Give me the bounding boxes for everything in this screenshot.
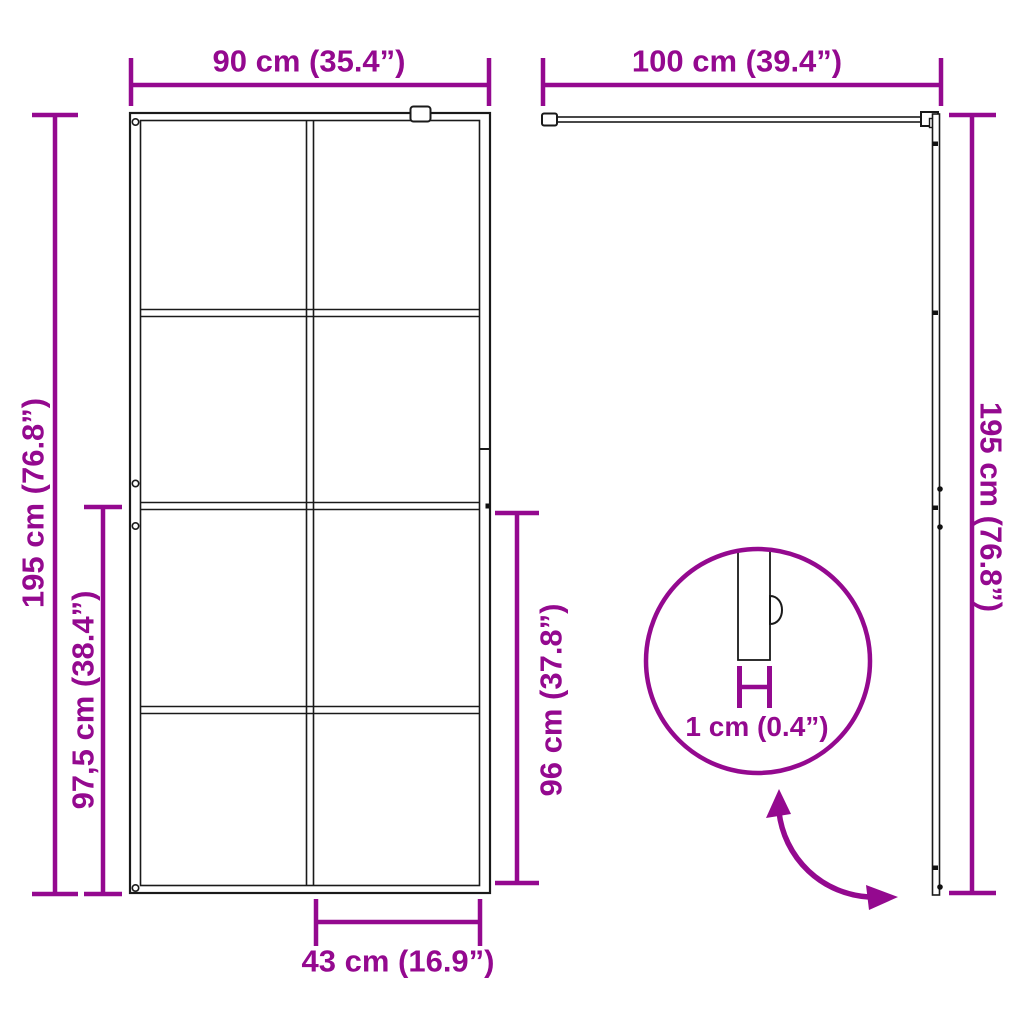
side-depth-label: 100 cm (39.4”) [632, 46, 842, 77]
glass-cross-section [738, 550, 770, 660]
glass-panel-edge [933, 114, 940, 895]
glass-panel-height-label: 96 cm (37.8”) [536, 604, 567, 797]
product-dimension-diagram: 90 cm (35.4”) 100 cm (39.4”) 195 cm (76.… [0, 0, 1024, 1024]
front-view-frame [130, 113, 490, 893]
lower-section-height-label: 97,5 cm (38.4”) [68, 591, 99, 810]
glass-knob [770, 596, 782, 624]
dim-line-bottom-width [316, 899, 480, 946]
dim-line-thickness [740, 666, 770, 708]
line-art [0, 0, 1024, 1024]
front-view-hardware [132, 107, 490, 892]
side-height-label: 195 cm (76.8”) [976, 402, 1007, 612]
roller-bracket [411, 107, 431, 122]
swing-direction-arrow-icon [766, 789, 898, 910]
side-view [542, 112, 943, 895]
arm-end-cap [542, 114, 557, 126]
screw-holes [132, 119, 138, 891]
bottom-panel-width-label: 43 cm (16.9”) [302, 946, 495, 977]
front-height-label: 195 cm (76.8”) [18, 398, 49, 608]
dim-line-glass-height [495, 513, 539, 883]
rail-stop [486, 504, 490, 509]
front-width-label: 90 cm (35.4”) [213, 46, 406, 77]
glass-thickness-label: 1 cm (0.4”) [685, 713, 828, 741]
support-arm [557, 117, 923, 122]
